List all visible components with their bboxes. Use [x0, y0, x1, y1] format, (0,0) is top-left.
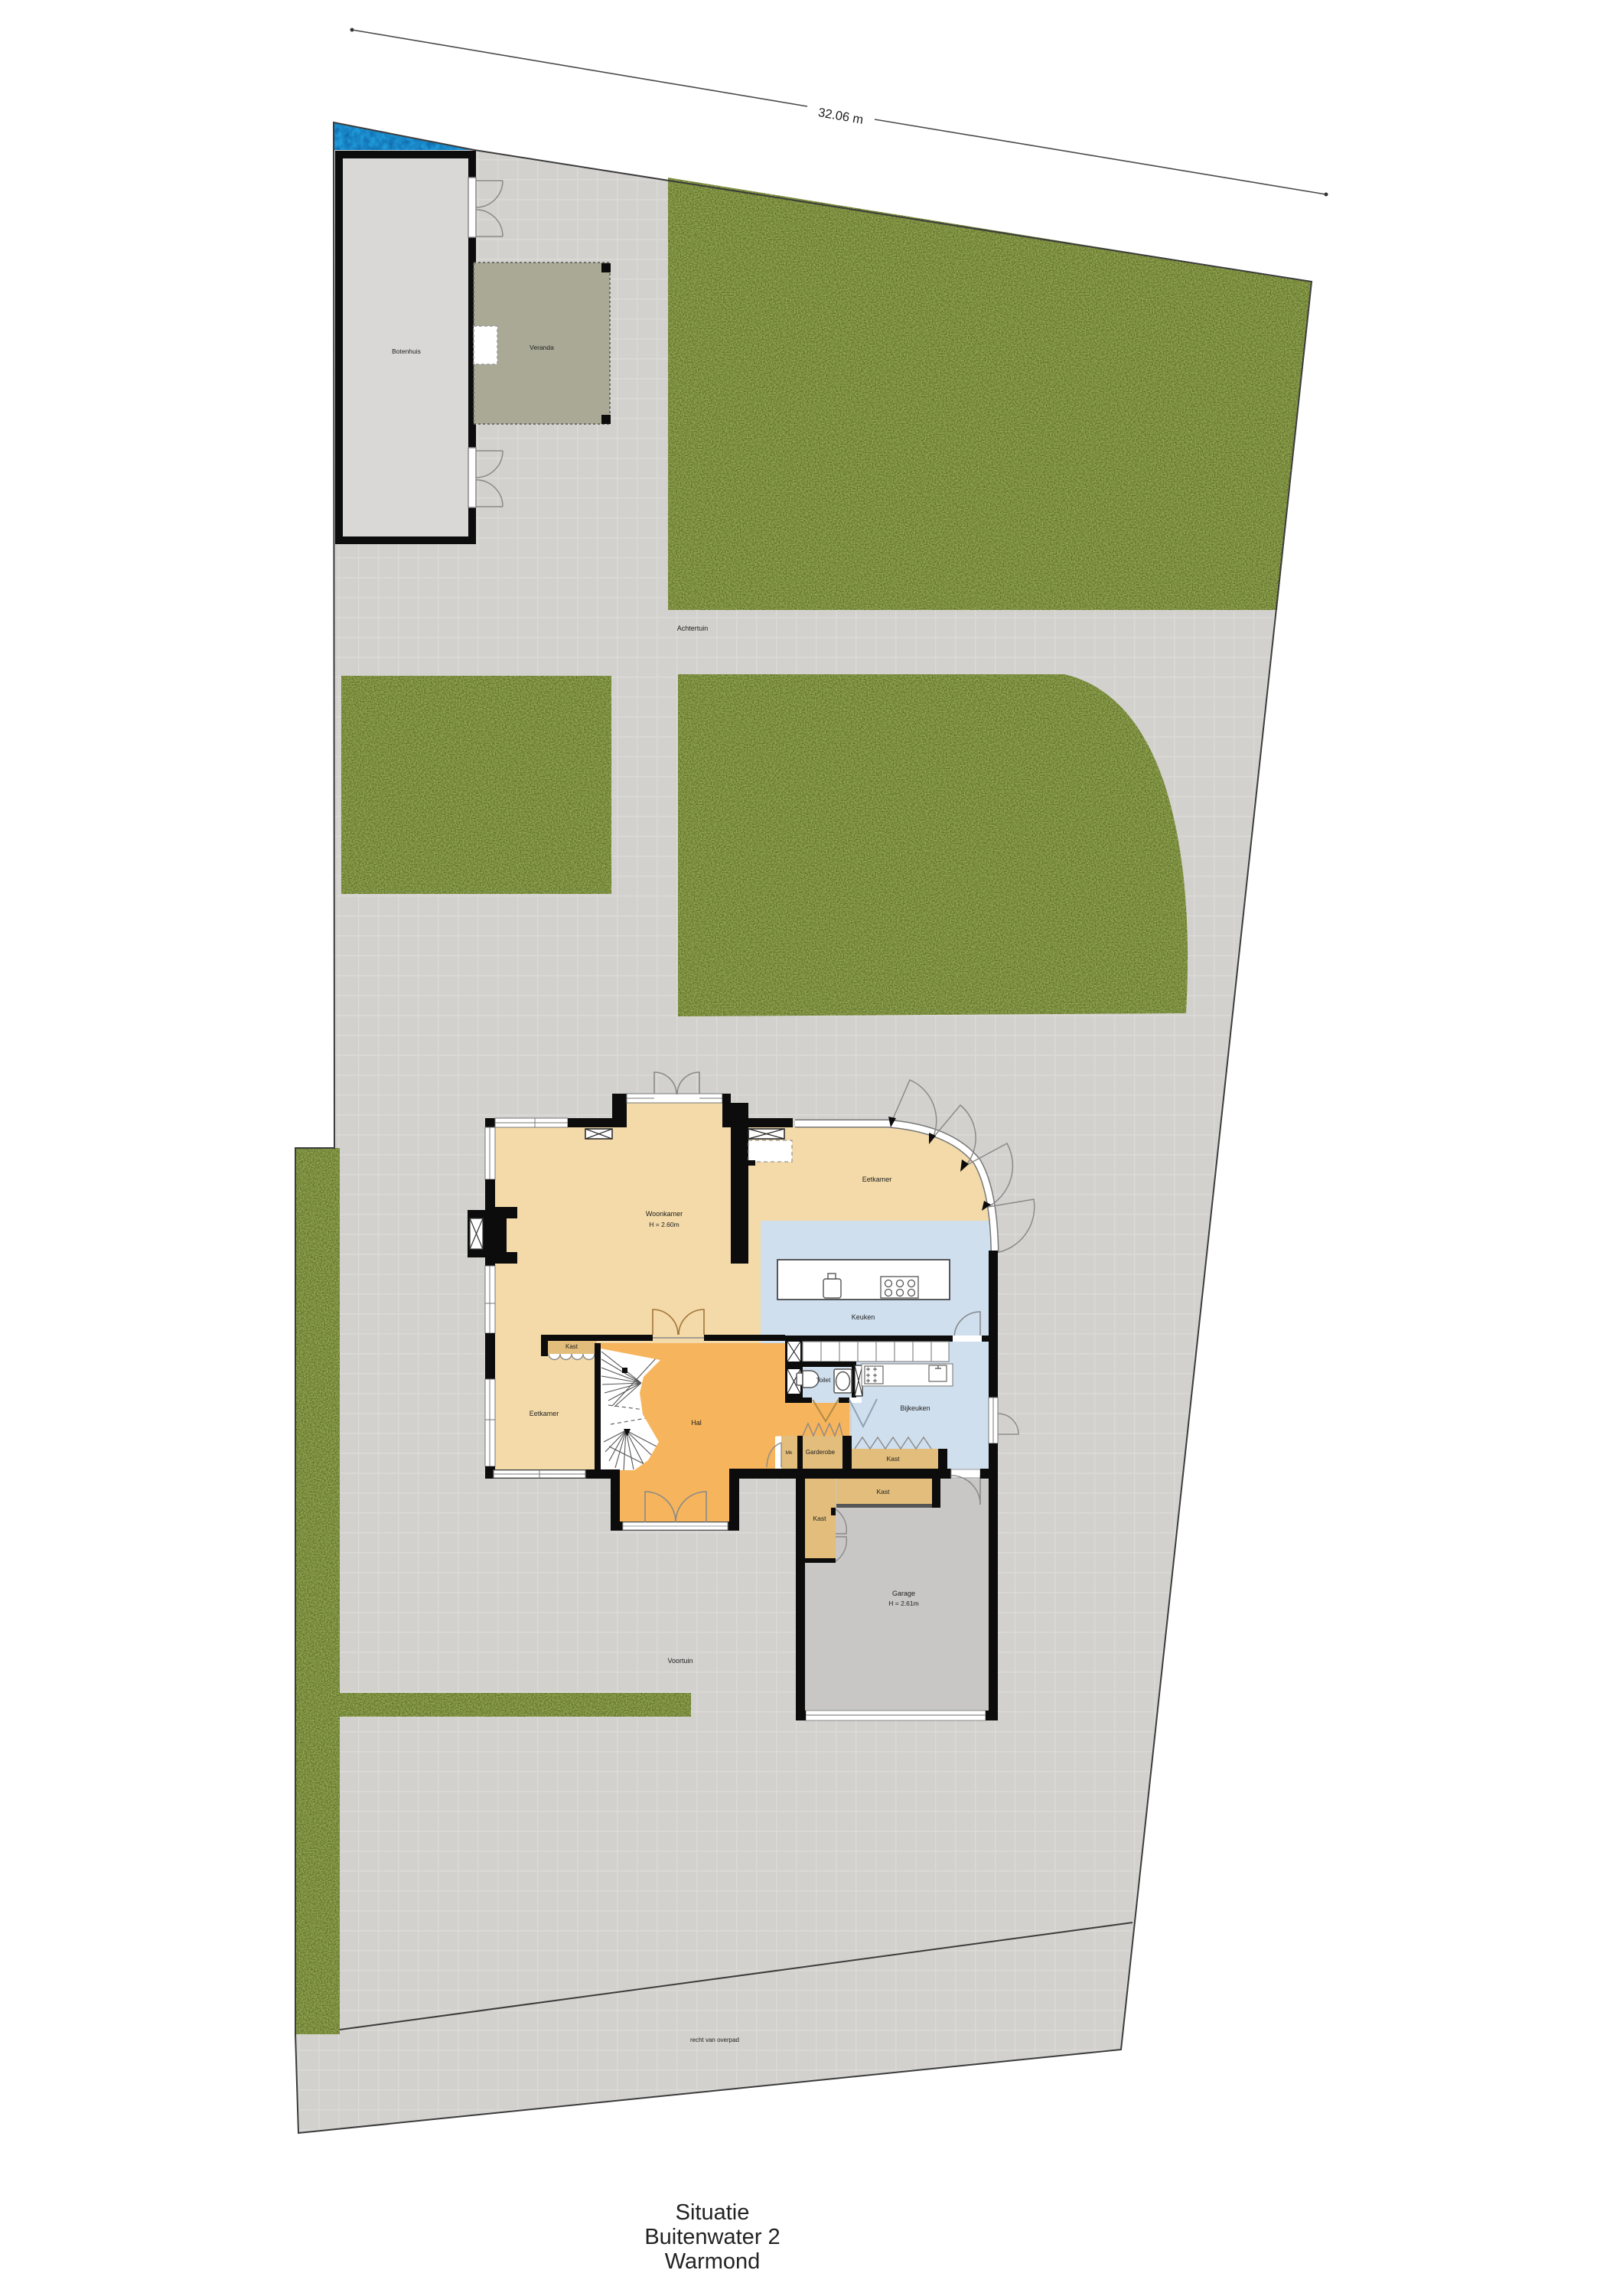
svg-text:Woonkamer: Woonkamer	[646, 1210, 683, 1218]
svg-text:H = 2.60m: H = 2.60m	[649, 1221, 679, 1228]
svg-text:Voortuin: Voortuin	[667, 1657, 693, 1665]
svg-text:Achtertuin: Achtertuin	[677, 625, 709, 632]
svg-text:Kast: Kast	[876, 1488, 890, 1495]
svg-text:Eetkamer: Eetkamer	[862, 1176, 892, 1183]
svg-text:Mk: Mk	[786, 1450, 793, 1456]
svg-text:Garderobe: Garderobe	[806, 1449, 836, 1456]
svg-text:H = 2.61m: H = 2.61m	[888, 1600, 918, 1607]
svg-text:Kast: Kast	[886, 1455, 900, 1463]
svg-text:Toilet: Toilet	[816, 1377, 831, 1384]
svg-text:Keuken: Keuken	[852, 1313, 875, 1321]
svg-text:Eetkamer: Eetkamer	[530, 1410, 559, 1417]
svg-text:Situatie: Situatie	[676, 2200, 750, 2225]
svg-text:Veranda: Veranda	[530, 344, 554, 351]
svg-text:Botenhuis: Botenhuis	[392, 347, 421, 355]
svg-text:recht van overpad: recht van overpad	[690, 2037, 739, 2043]
svg-text:Warmond: Warmond	[665, 2249, 761, 2274]
svg-text:Kast: Kast	[565, 1343, 578, 1350]
svg-text:Buitenwater 2: Buitenwater 2	[644, 2225, 780, 2249]
svg-text:Hal: Hal	[691, 1419, 702, 1427]
svg-text:Kast: Kast	[813, 1515, 826, 1522]
svg-text:Garage: Garage	[892, 1590, 915, 1597]
svg-text:Bijkeuken: Bijkeuken	[900, 1404, 930, 1412]
